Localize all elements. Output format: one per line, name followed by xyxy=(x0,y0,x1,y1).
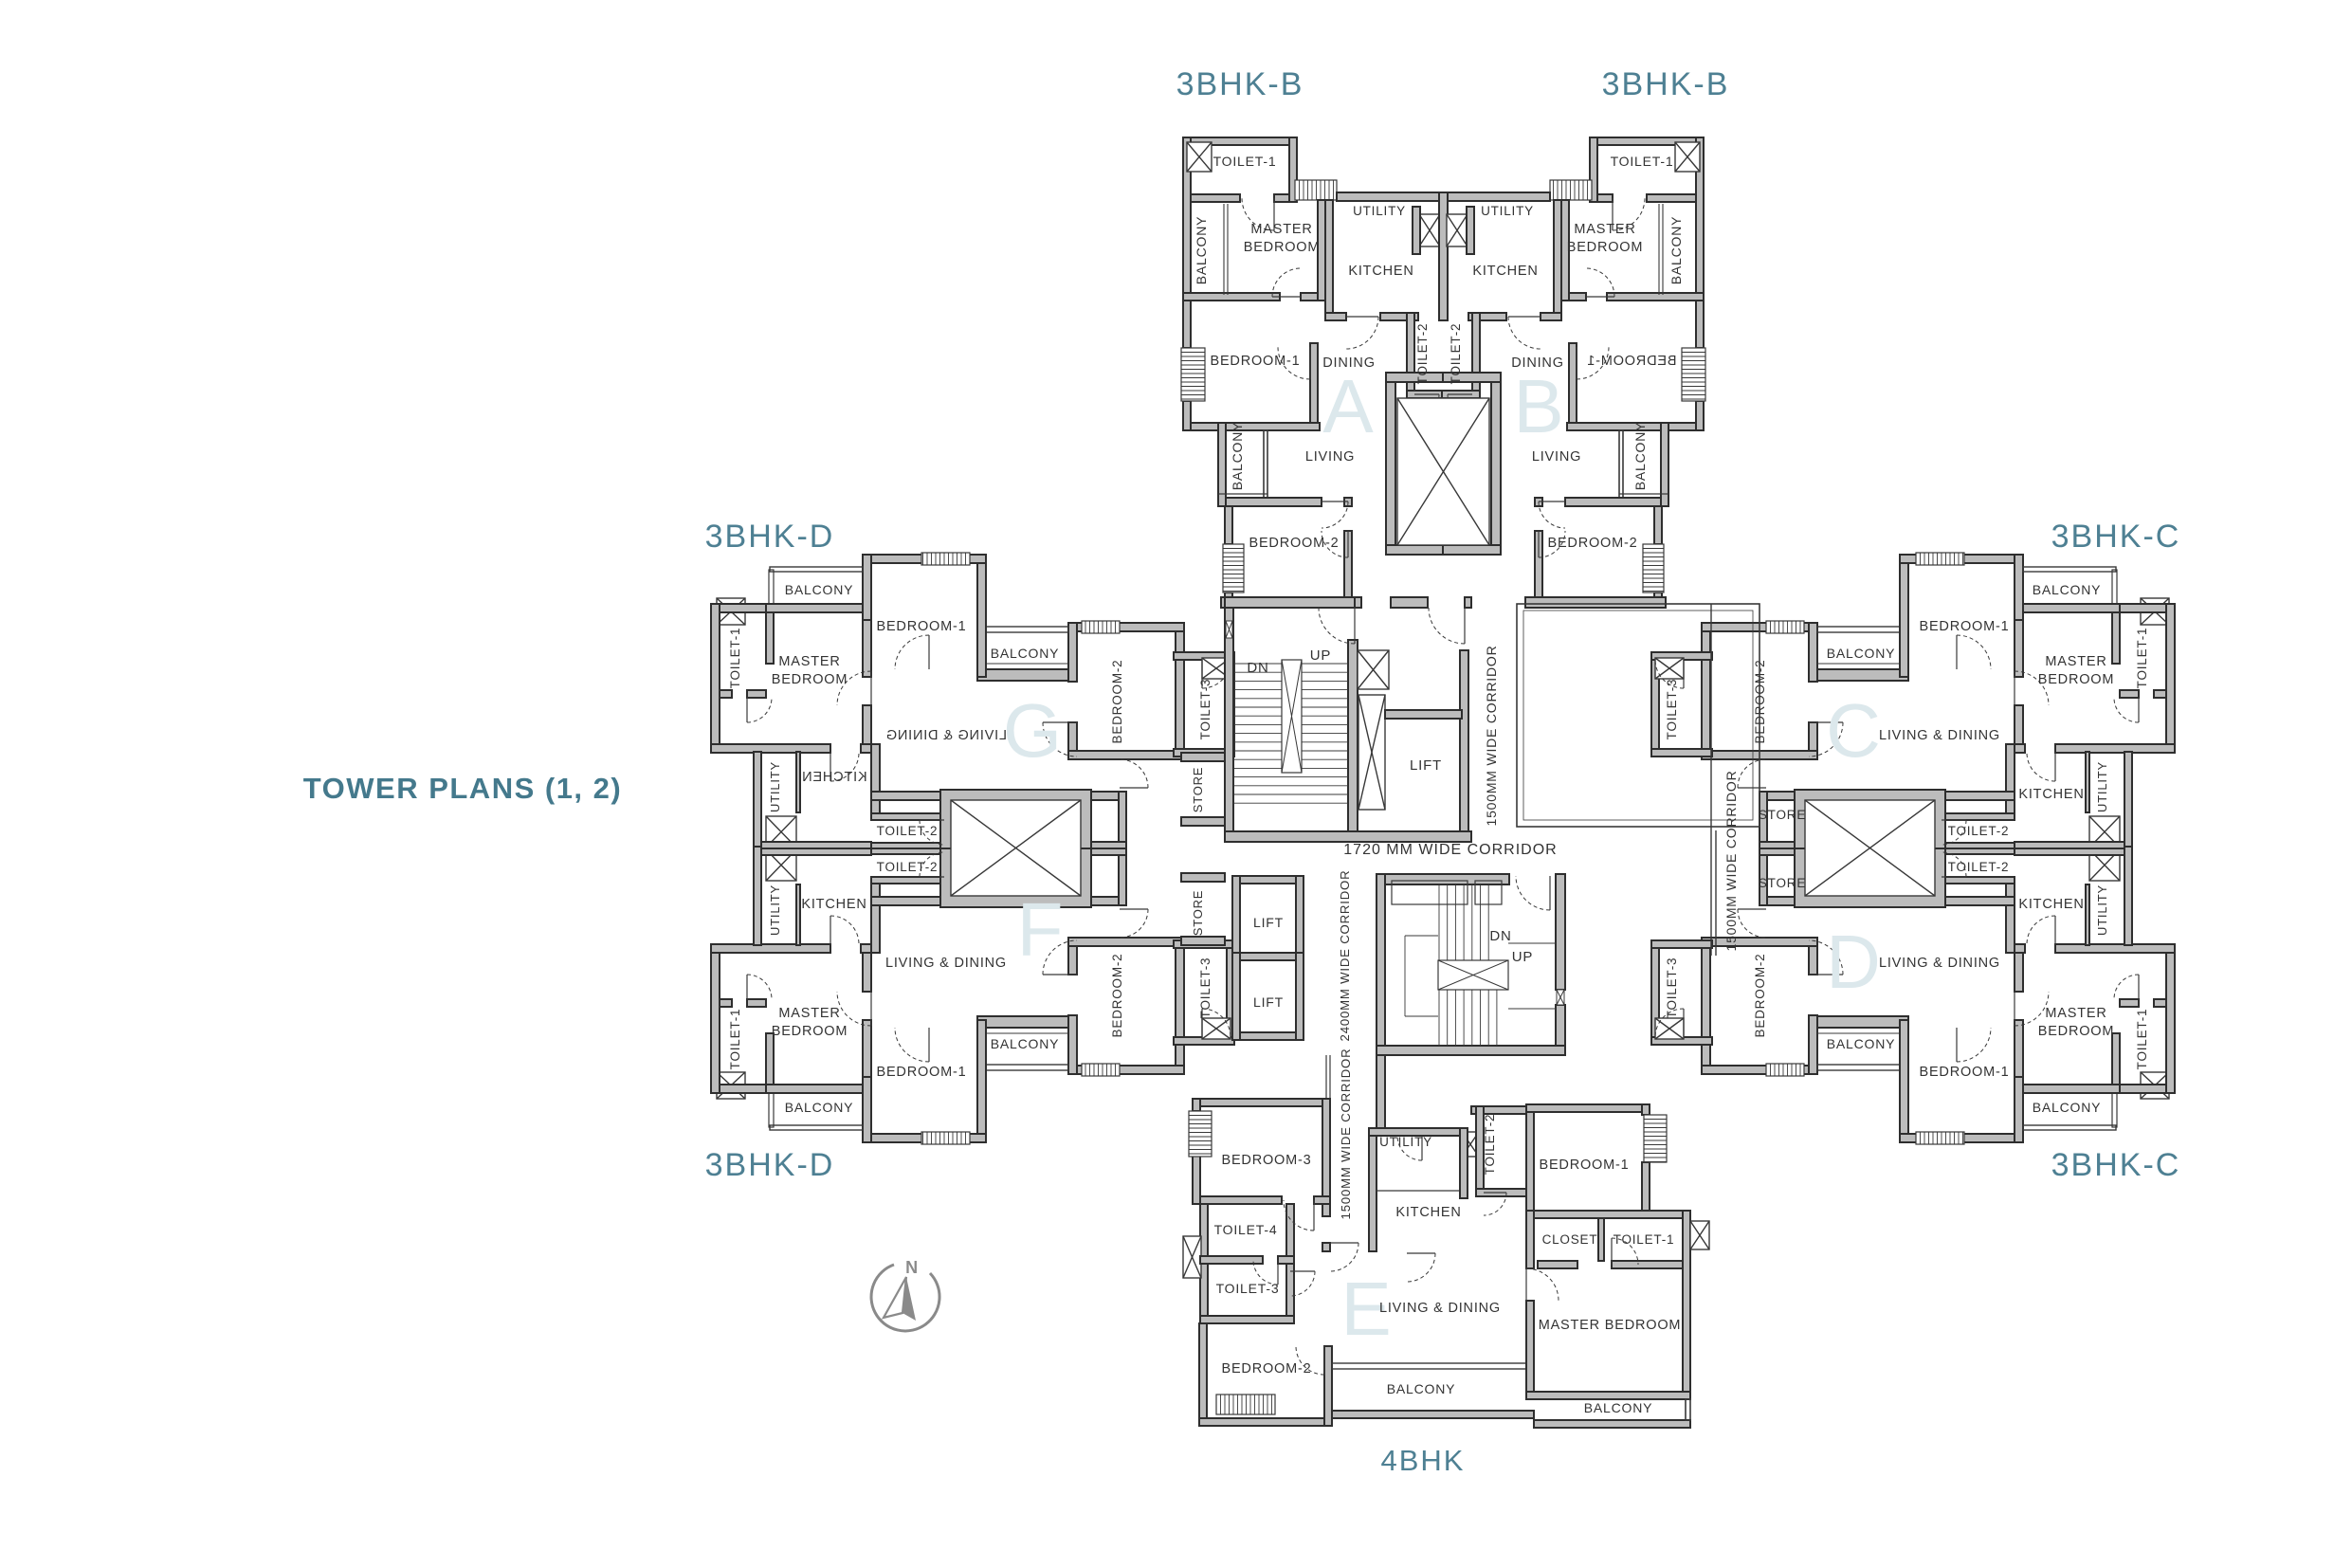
svg-text:BEDROOM-1: BEDROOM-1 xyxy=(1919,1065,2009,1080)
svg-text:BALCONY: BALCONY xyxy=(1827,1036,1896,1051)
svg-text:TOILET-2: TOILET-2 xyxy=(877,860,939,874)
svg-text:TOILET-2: TOILET-2 xyxy=(877,824,939,838)
svg-text:UP: UP xyxy=(1512,949,1533,965)
svg-text:KITCHEN: KITCHEN xyxy=(1395,1205,1461,1220)
svg-text:1500MM WIDE CORRIDOR: 1500MM WIDE CORRIDOR xyxy=(1339,1048,1353,1220)
svg-text:KITCHEN: KITCHEN xyxy=(801,770,866,785)
svg-text:N: N xyxy=(905,1258,919,1277)
svg-text:MASTER: MASTER xyxy=(2045,1006,2106,1021)
svg-text:TOILET-2: TOILET-2 xyxy=(1483,1114,1497,1176)
svg-text:TOILET-3: TOILET-3 xyxy=(1665,957,1679,1019)
svg-text:BEDROOM-3: BEDROOM-3 xyxy=(1221,1153,1311,1168)
svg-text:BEDROOM: BEDROOM xyxy=(772,1024,848,1039)
svg-text:UTILITY: UTILITY xyxy=(1353,204,1406,218)
svg-text:LIVING & DINING: LIVING & DINING xyxy=(1879,956,2000,971)
svg-text:TOILET-1: TOILET-1 xyxy=(2135,628,2149,689)
svg-text:BEDROOM-1: BEDROOM-1 xyxy=(1539,1158,1629,1173)
svg-text:TOILET-4: TOILET-4 xyxy=(1214,1222,1278,1237)
svg-text:3BHK-D: 3BHK-D xyxy=(705,1147,835,1183)
svg-text:BEDROOM-2: BEDROOM-2 xyxy=(1249,536,1339,551)
svg-text:F: F xyxy=(1017,887,1064,972)
svg-text:MASTER: MASTER xyxy=(1250,222,1312,237)
svg-text:DN: DN xyxy=(1247,660,1268,676)
svg-text:BEDROOM-1: BEDROOM-1 xyxy=(876,619,966,634)
svg-text:LIVING & DINING: LIVING & DINING xyxy=(885,956,1007,971)
svg-text:BEDROOM-1: BEDROOM-1 xyxy=(1586,354,1676,369)
svg-text:BEDROOM: BEDROOM xyxy=(1567,240,1644,255)
svg-text:DN: DN xyxy=(1489,928,1511,944)
svg-text:B: B xyxy=(1513,364,1563,448)
svg-text:BALCONY: BALCONY xyxy=(2033,582,2102,597)
svg-text:STORE: STORE xyxy=(1191,890,1205,937)
svg-text:LIVING & DINING: LIVING & DINING xyxy=(885,728,1007,743)
svg-text:KITCHEN: KITCHEN xyxy=(2018,787,2084,802)
svg-text:STORE: STORE xyxy=(1191,767,1205,813)
svg-text:3BHK-C: 3BHK-C xyxy=(2051,1147,2181,1183)
svg-text:UTILITY: UTILITY xyxy=(2095,884,2109,936)
svg-text:MASTER BEDROOM: MASTER BEDROOM xyxy=(1539,1318,1682,1333)
svg-text:1500MM WIDE CORRIDOR: 1500MM WIDE CORRIDOR xyxy=(1723,770,1739,951)
svg-text:UTILITY: UTILITY xyxy=(2095,761,2109,812)
svg-text:BALCONY: BALCONY xyxy=(1387,1381,1456,1396)
svg-text:UTILITY: UTILITY xyxy=(1379,1135,1432,1149)
svg-text:BALCONY: BALCONY xyxy=(2033,1100,2102,1115)
svg-text:TOWER PLANS (1, 2): TOWER PLANS (1, 2) xyxy=(303,772,622,805)
svg-text:BEDROOM: BEDROOM xyxy=(2038,1024,2115,1039)
svg-text:MASTER: MASTER xyxy=(2045,654,2106,669)
svg-text:BEDROOM-1: BEDROOM-1 xyxy=(1919,619,2009,634)
svg-text:BEDROOM-1: BEDROOM-1 xyxy=(876,1065,966,1080)
svg-text:TOILET-3: TOILET-3 xyxy=(1665,679,1679,740)
svg-text:KITCHEN: KITCHEN xyxy=(1472,264,1538,279)
svg-text:UP: UP xyxy=(1310,647,1331,664)
svg-text:KITCHEN: KITCHEN xyxy=(1348,264,1413,279)
svg-text:BALCONY: BALCONY xyxy=(991,646,1060,661)
svg-text:TOILET-2: TOILET-2 xyxy=(1948,860,2010,874)
svg-text:TOILET-3: TOILET-3 xyxy=(1216,1281,1280,1296)
svg-text:BEDROOM-2: BEDROOM-2 xyxy=(1753,660,1767,744)
svg-text:TOILET-2: TOILET-2 xyxy=(1948,824,2010,838)
svg-text:BALCONY: BALCONY xyxy=(1584,1400,1653,1415)
svg-text:BEDROOM-2: BEDROOM-2 xyxy=(1221,1361,1311,1377)
svg-text:BALCONY: BALCONY xyxy=(1194,216,1209,285)
svg-text:MASTER: MASTER xyxy=(778,654,840,669)
svg-text:C: C xyxy=(1826,688,1881,773)
svg-text:CLOSET: CLOSET xyxy=(1542,1232,1598,1247)
svg-text:BALCONY: BALCONY xyxy=(1632,422,1648,491)
svg-text:TOILET-3: TOILET-3 xyxy=(1198,679,1212,740)
svg-text:BEDROOM: BEDROOM xyxy=(772,672,848,687)
svg-text:3BHK-D: 3BHK-D xyxy=(705,519,835,555)
svg-text:3BHK-C: 3BHK-C xyxy=(2051,519,2181,555)
svg-text:A: A xyxy=(1322,364,1374,448)
svg-text:KITCHEN: KITCHEN xyxy=(801,897,866,912)
svg-text:BALCONY: BALCONY xyxy=(991,1036,1060,1051)
svg-text:LIVING: LIVING xyxy=(1532,449,1581,465)
svg-text:TOILET-1: TOILET-1 xyxy=(728,1009,742,1070)
svg-text:TOILET-1: TOILET-1 xyxy=(1614,1232,1675,1247)
svg-text:D: D xyxy=(1826,920,1881,1004)
svg-text:3BHK-B: 3BHK-B xyxy=(1602,66,1730,102)
svg-text:UTILITY: UTILITY xyxy=(1481,204,1534,218)
svg-text:3BHK-B: 3BHK-B xyxy=(1176,66,1304,102)
svg-text:BALCONY: BALCONY xyxy=(785,1100,854,1115)
svg-text:LIFT: LIFT xyxy=(1253,915,1284,930)
svg-text:G: G xyxy=(1003,688,1062,773)
svg-text:UTILITY: UTILITY xyxy=(768,884,782,936)
svg-text:UTILITY: UTILITY xyxy=(768,761,782,812)
svg-text:STORE: STORE xyxy=(1759,876,1806,890)
svg-text:BALCONY: BALCONY xyxy=(785,582,854,597)
svg-text:KITCHEN: KITCHEN xyxy=(2018,897,2084,912)
svg-text:BEDROOM: BEDROOM xyxy=(2038,672,2115,687)
svg-text:4BHK: 4BHK xyxy=(1381,1444,1466,1477)
svg-text:TOILET-3: TOILET-3 xyxy=(1198,957,1212,1019)
svg-text:BALCONY: BALCONY xyxy=(1230,422,1245,491)
svg-text:MASTER: MASTER xyxy=(1574,222,1635,237)
svg-text:MASTER: MASTER xyxy=(778,1006,840,1021)
svg-text:1720 MM WIDE CORRIDOR: 1720 MM WIDE CORRIDOR xyxy=(1343,842,1557,858)
svg-text:BALCONY: BALCONY xyxy=(1668,216,1684,285)
svg-text:BEDROOM-1: BEDROOM-1 xyxy=(1210,354,1300,369)
svg-text:LIFT: LIFT xyxy=(1253,994,1284,1010)
svg-text:BEDROOM: BEDROOM xyxy=(1244,240,1321,255)
svg-text:2400MM WIDE CORRIDOR: 2400MM WIDE CORRIDOR xyxy=(1338,870,1352,1042)
svg-text:LIVING & DINING: LIVING & DINING xyxy=(1379,1301,1501,1316)
svg-text:BEDROOM-2: BEDROOM-2 xyxy=(1753,954,1767,1038)
svg-text:1500MM WIDE CORRIDOR: 1500MM WIDE CORRIDOR xyxy=(1484,645,1499,826)
svg-text:STORE: STORE xyxy=(1759,808,1806,822)
svg-text:BALCONY: BALCONY xyxy=(1827,646,1896,661)
svg-text:TOILET-1: TOILET-1 xyxy=(1611,154,1674,169)
svg-text:TOILET-2: TOILET-2 xyxy=(1449,323,1463,385)
svg-text:TOILET-1: TOILET-1 xyxy=(1213,154,1277,169)
svg-text:LIVING & DINING: LIVING & DINING xyxy=(1879,728,2000,743)
svg-text:BEDROOM-2: BEDROOM-2 xyxy=(1110,660,1124,744)
svg-text:BEDROOM-2: BEDROOM-2 xyxy=(1547,536,1637,551)
svg-text:LIVING: LIVING xyxy=(1305,449,1355,465)
svg-text:TOILET-1: TOILET-1 xyxy=(728,628,742,689)
svg-text:TOILET-1: TOILET-1 xyxy=(2135,1009,2149,1070)
svg-text:TOILET-2: TOILET-2 xyxy=(1415,323,1430,385)
svg-text:LIFT: LIFT xyxy=(1410,757,1442,774)
svg-text:BEDROOM-2: BEDROOM-2 xyxy=(1110,954,1124,1038)
